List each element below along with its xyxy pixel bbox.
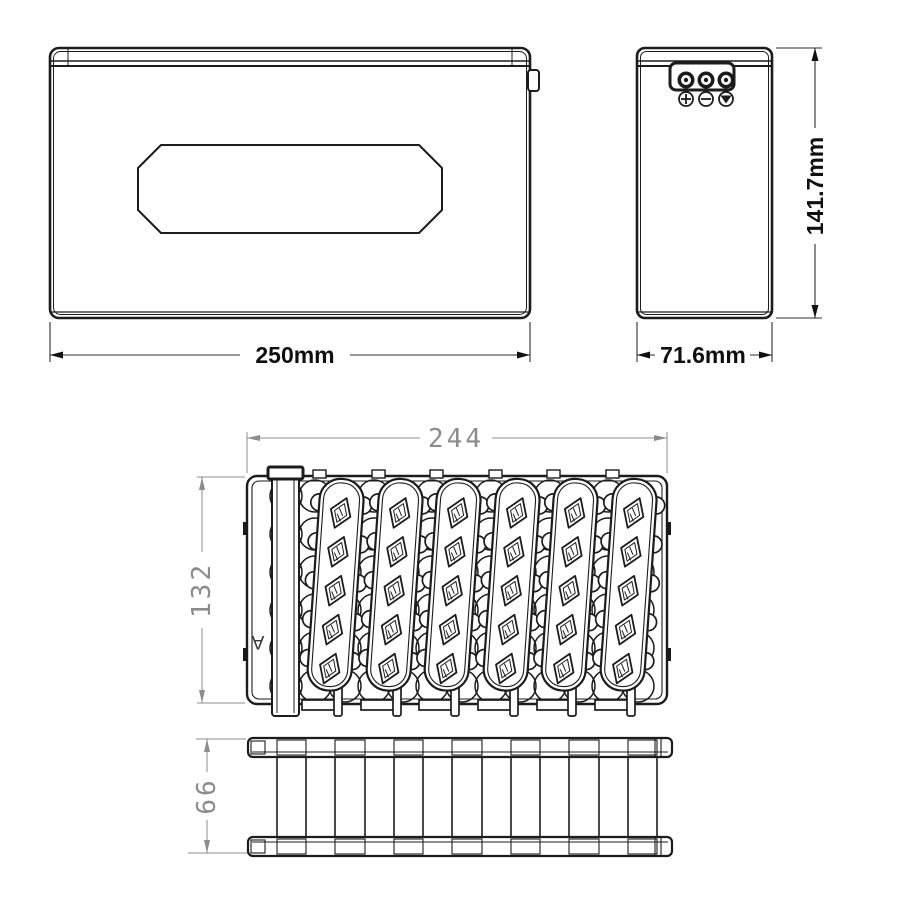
sense-terminal-icon bbox=[719, 92, 733, 106]
holder-rails bbox=[248, 738, 672, 856]
pack-width-label: 244 bbox=[428, 424, 484, 454]
frame-clip bbox=[666, 522, 671, 535]
technical-drawing: 250mm bbox=[0, 0, 900, 900]
pack-top-view: 244 132 bbox=[187, 424, 671, 716]
front-width-label: 250mm bbox=[255, 342, 334, 368]
frame-clip bbox=[243, 522, 248, 535]
dimension-depth-71-6: 71.6mm bbox=[637, 322, 772, 368]
dimension-width-250: 250mm bbox=[50, 322, 530, 368]
side-height-label: 141.7mm bbox=[802, 137, 828, 235]
terminal-sockets bbox=[678, 72, 735, 89]
frame-clip bbox=[666, 648, 671, 661]
frame-clip bbox=[243, 648, 248, 661]
side-view: 141.7mm 71.6mm bbox=[637, 48, 828, 368]
dimension-pack-depth-66: 66 bbox=[188, 739, 250, 853]
pack-front-view: 66 bbox=[188, 738, 672, 856]
busbar-strips bbox=[298, 477, 667, 693]
cell-dividers bbox=[277, 757, 657, 837]
pack-depth-label: 66 bbox=[192, 777, 222, 814]
negative-terminal-icon bbox=[699, 92, 713, 106]
section-marker: A bbox=[251, 631, 264, 652]
label-recess bbox=[138, 145, 442, 233]
positive-terminal-icon bbox=[679, 92, 693, 106]
side-depth-label: 71.6mm bbox=[660, 342, 746, 368]
pack-height-label: 132 bbox=[187, 562, 217, 618]
retainer-bar bbox=[268, 467, 303, 716]
dimension-pack-height-132: 132 bbox=[187, 477, 245, 703]
dimension-height-141-7: 141.7mm bbox=[776, 48, 828, 318]
front-view: 250mm bbox=[50, 48, 539, 368]
dimension-pack-width-244: 244 bbox=[247, 424, 667, 473]
latch-tab bbox=[528, 70, 539, 91]
